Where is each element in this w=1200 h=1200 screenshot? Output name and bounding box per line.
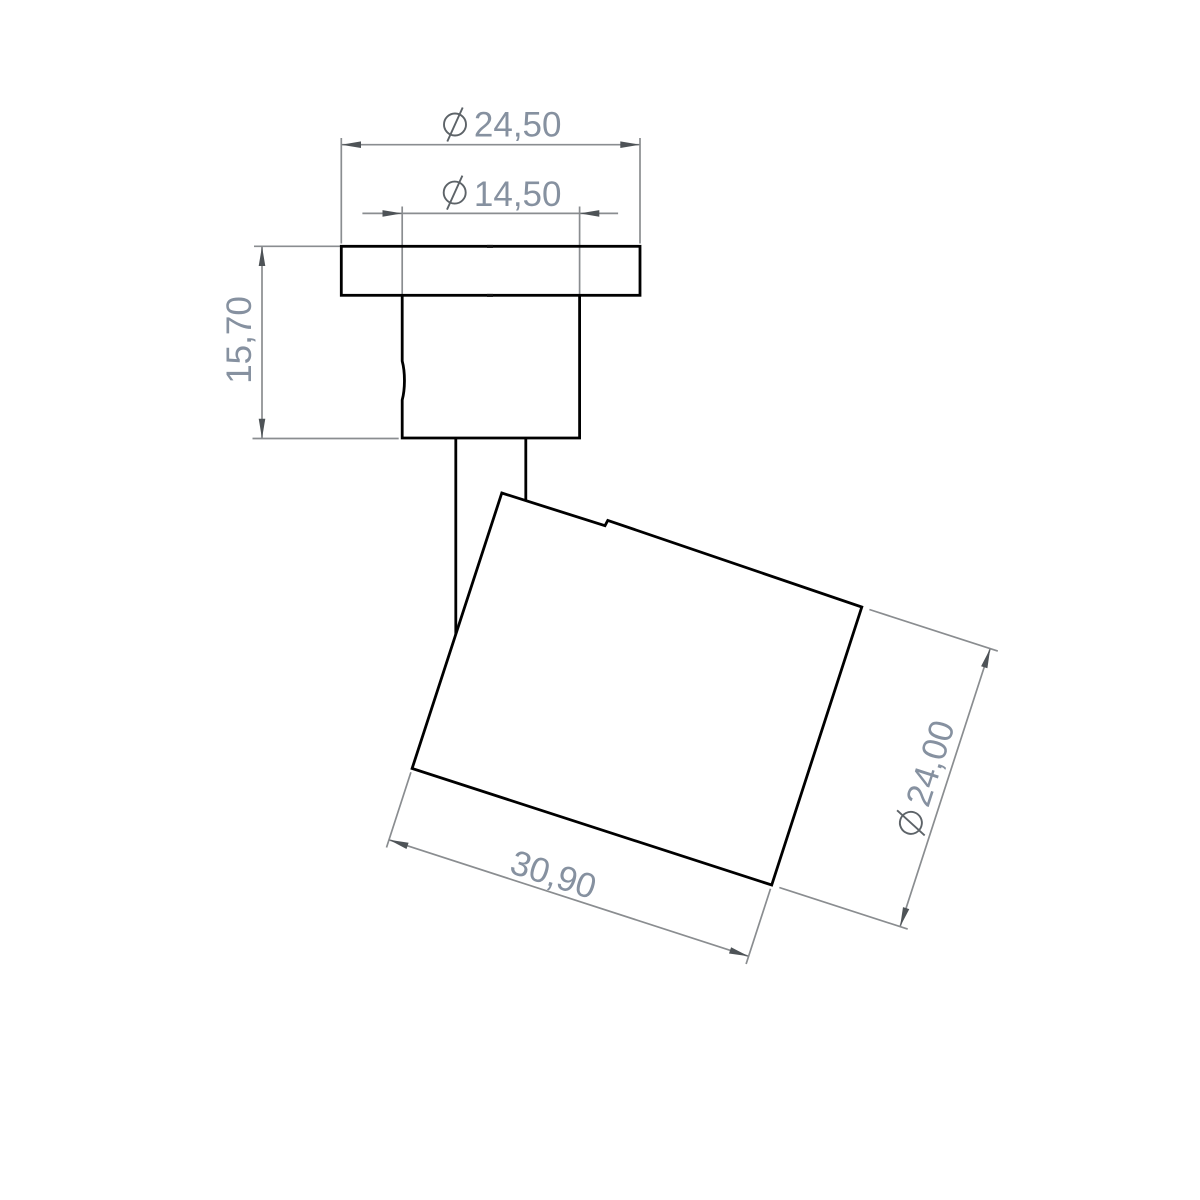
- svg-text:24,50: 24,50: [474, 106, 562, 145]
- svg-text:14,50: 14,50: [474, 175, 562, 214]
- svg-text:15,70: 15,70: [220, 296, 259, 384]
